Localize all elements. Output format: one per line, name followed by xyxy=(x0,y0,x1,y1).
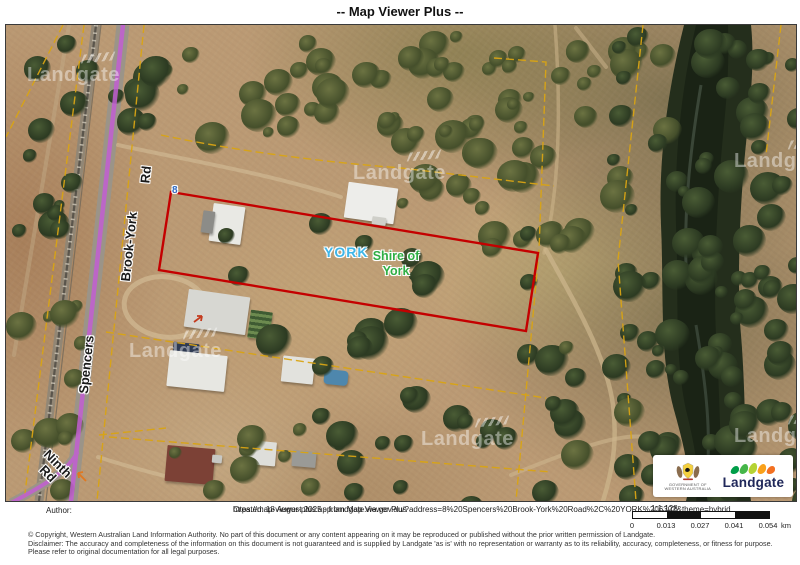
print-page: -- Map Viewer Plus -- xyxy=(0,0,800,565)
landgate-watermark: Landgate xyxy=(734,150,797,173)
landgate-watermark-swoosh-icon xyxy=(407,149,442,161)
wa-government-logo: GOVERNMENT OF WESTERN AUSTRALIA xyxy=(662,461,714,492)
landgate-watermark-swoosh-icon xyxy=(788,137,797,149)
scale-tick-1: 0.013 xyxy=(657,521,676,530)
map-viewport[interactable]: Spencers Brook-York Rd NinthRd YORK Shir… xyxy=(5,24,797,502)
scale-bar xyxy=(632,511,770,519)
landgate-watermark-swoosh-icon xyxy=(81,51,116,63)
watermark-layer: LandgateLandgateLandgateLandgateLandgate… xyxy=(6,25,796,501)
scale-tick-0: 0 xyxy=(630,521,634,530)
copyright-block: © Copyright, Western Australian Land Inf… xyxy=(28,531,788,557)
wa-crest-icon xyxy=(675,461,701,483)
landgate-watermark: Landgate xyxy=(27,64,120,87)
scale-tick-3: 0.041 xyxy=(725,521,744,530)
scale-unit: km xyxy=(781,521,791,530)
landgate-watermark-swoosh-icon xyxy=(788,412,797,424)
landgate-swoosh-icon xyxy=(731,462,775,474)
landgate-watermark-swoosh-icon xyxy=(183,327,218,339)
government-text-line2: WESTERN AUSTRALIA xyxy=(665,487,712,492)
landgate-watermark: Landgate xyxy=(129,340,222,363)
scale-tick-2: 0.027 xyxy=(691,521,710,530)
page-title: -- Map Viewer Plus -- xyxy=(0,4,800,19)
landgate-logo-text: Landgate xyxy=(723,475,785,490)
landgate-logo: Landgate xyxy=(723,462,785,490)
landgate-watermark: Landgate xyxy=(421,428,514,451)
copyright-line3: Please refer to original documentation f… xyxy=(28,548,788,557)
scale-tick-4: 0.054 xyxy=(759,521,778,530)
author-label: Author: xyxy=(46,506,72,515)
landgate-watermark: Landgate xyxy=(734,425,797,448)
landgate-watermark: Landgate xyxy=(353,162,446,185)
logos-panel: GOVERNMENT OF WESTERN AUSTRALIA Landgate xyxy=(653,455,793,497)
landgate-watermark-swoosh-icon xyxy=(475,415,510,427)
